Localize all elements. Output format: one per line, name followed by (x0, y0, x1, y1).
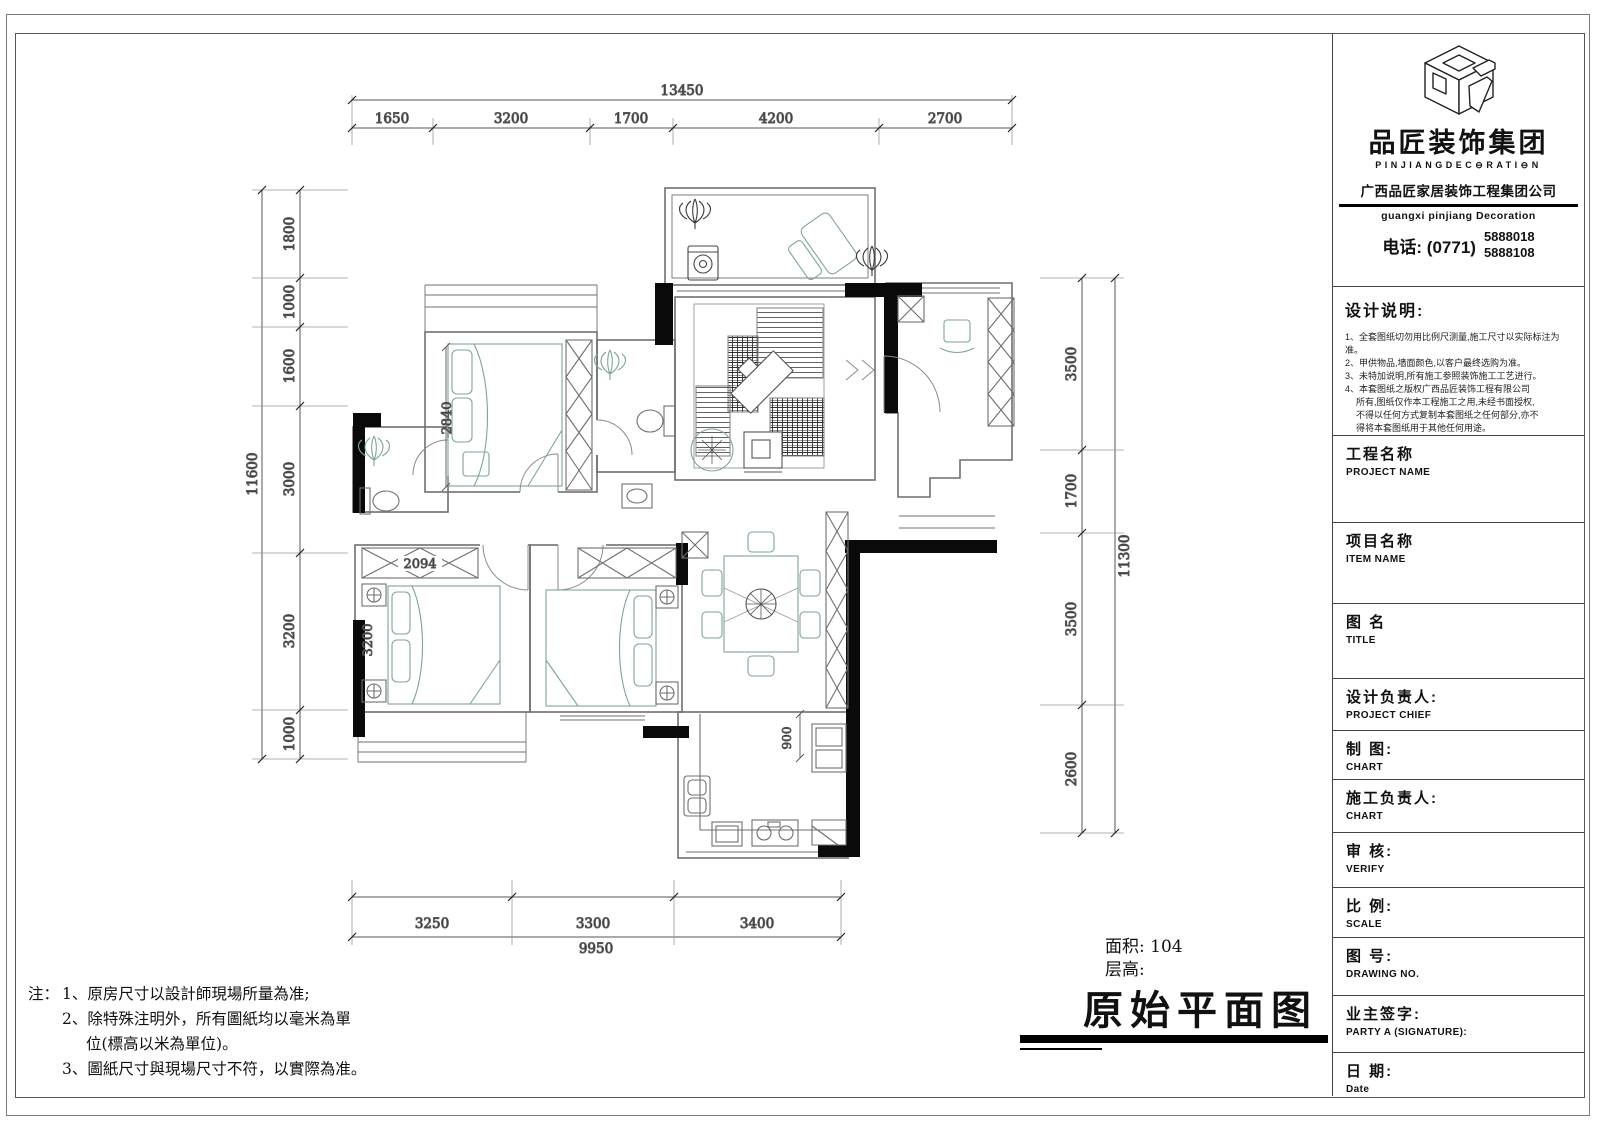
field-label-cn: 施工负责人: (1346, 787, 1584, 808)
bathroom-left-outline (353, 427, 448, 512)
field-chart: 制 图: CHART (1333, 730, 1584, 779)
field-label-en: VERIFY (1346, 864, 1584, 875)
company-name-cn: 品匠装饰集团 (1333, 128, 1584, 158)
field-scale: 比 例: SCALE (1333, 887, 1584, 937)
bed-bedroom-2 (388, 586, 500, 704)
title-block-header: 品匠装饰集团 PINJIANGDEC⊖RATI⊖N 广西品匠家居装饰工程集团公司… (1333, 42, 1584, 286)
dim-right-total: 11300 (1117, 535, 1133, 578)
window-balcony-band (677, 285, 845, 291)
design-note-line: 2、甲供物品,墙面颜色,以客户最终选购为准。 (1345, 357, 1576, 370)
phone-label: 电话: (0771) (1382, 233, 1476, 258)
phone-numbers: 5888018 5888108 (1484, 229, 1535, 261)
entry-porch-steps (899, 516, 995, 528)
nightstands-bedroom-3 (656, 586, 678, 704)
note-line: 2、除特殊注明外，所有圖紙均以毫米為單 (28, 1007, 388, 1032)
design-note-line: 不得以任何方式复制本套图纸之任何部分,亦不 (1345, 409, 1576, 422)
phone-number-2: 5888108 (1484, 245, 1535, 260)
field-drawing-no: 图 号: DRAWING NO. (1333, 937, 1584, 995)
design-notes-title: 设计说明: (1345, 297, 1576, 321)
toilet-center-bathroom (637, 406, 675, 436)
dim-top-seg: 3200 (494, 111, 528, 127)
dim-top-seg: 1700 (614, 111, 648, 127)
company-logo (1411, 42, 1507, 128)
field-label-en: ITEM NAME (1346, 554, 1584, 565)
note-line: 3、圖紙尺寸與現場尺寸不符，以實際為准。 (28, 1057, 388, 1082)
bathroom-center-outline (597, 340, 675, 472)
field-label-cn: 制 图: (1346, 738, 1584, 759)
wardrobe-study (898, 296, 1014, 426)
desk-chair-study (940, 320, 974, 353)
field-label-cn: 比 例: (1346, 895, 1584, 916)
drawing-title-underline (1020, 1035, 1328, 1043)
dim-top-seg: 4200 (759, 111, 793, 127)
design-note-line: 4、本套图纸之版权广西品匠装饰工程有限公司 (1345, 383, 1576, 396)
door-bedroom-2 (483, 545, 528, 590)
dim-right-seg: 3500 (1064, 602, 1080, 636)
side-table-tea-room (744, 432, 782, 472)
dim-chain-right: 11300 3500 1700 3500 2600 (1040, 274, 1133, 837)
field-label-cn: 设计负责人: (1346, 686, 1584, 707)
design-notes-body: 1、全套图纸切勿用比例尺测量,施工尺寸以实际标注为准。 2、甲供物品,墙面颜色,… (1345, 331, 1576, 435)
dim-top-seg: 2700 (928, 111, 962, 127)
company-name-en: PINJIANGDEC⊖RATI⊖N (1333, 160, 1584, 171)
door-gaps (443, 420, 606, 549)
field-label-en: CHART (1346, 762, 1584, 773)
field-label-en: PARTY A (SIGNATURE): (1346, 1027, 1584, 1038)
plant-bathroom (595, 350, 626, 380)
field-label-cn: 图 名 (1346, 611, 1584, 632)
field-label-en: PROJECT CHIEF (1346, 710, 1584, 721)
dim-right-seg: 2600 (1064, 752, 1080, 786)
field-party-signature: 业主签字: PARTY A (SIGNATURE): (1333, 995, 1584, 1052)
field-label-cn: 日 期: (1346, 1060, 1584, 1081)
door-bathroom-center (597, 420, 632, 455)
dim-left-seg: 1000 (282, 285, 298, 319)
bay-window-top (425, 285, 597, 332)
design-note-line: 1、全套图纸切勿用比例尺测量,施工尺寸以实际标注为准。 (1345, 331, 1576, 357)
field-label-cn: 图 号: (1346, 945, 1584, 966)
door-bedroom-3 (558, 545, 603, 590)
dim-left-seg: 3200 (282, 614, 298, 648)
drawing-title-underline-thin (1020, 1048, 1102, 1050)
fridge (812, 724, 846, 772)
dim-bottom-total: 9950 (579, 941, 613, 957)
dim-top-total: 13450 (661, 83, 704, 99)
corner-cabinet (812, 820, 846, 845)
field-label-en: Date (1346, 1084, 1584, 1095)
design-notes-section: 设计说明: 1、全套图纸切勿用比例尺测量,施工尺寸以实际标注为准。 2、甲供物品… (1333, 286, 1584, 435)
field-title: 图 名 TITLE (1333, 603, 1584, 678)
tall-cabinet-dining (682, 512, 848, 708)
design-note-line: 3、未特加说明,所有施工参照装饰施工工艺进行。 (1345, 370, 1576, 383)
bedroom-2-outline (355, 545, 530, 712)
dim-chain-left: 11600 1800 1000 1600 3000 3200 1000 (245, 186, 348, 763)
field-label-cn: 工程名称 (1346, 443, 1584, 464)
field-project-chief: 设计负责人: PROJECT CHIEF (1333, 678, 1584, 730)
dim-left-seg: 1800 (282, 217, 298, 251)
washing-machine (688, 246, 718, 280)
dim-right-seg: 3500 (1064, 347, 1080, 381)
company-phone: 电话: (0771) 5888018 5888108 (1333, 229, 1584, 261)
washbasin (622, 484, 652, 508)
field-project-name: 工程名称 PROJECT NAME (1333, 435, 1584, 522)
entry-direction-arrows (846, 360, 874, 380)
drawing-sheet: 13450 1650 3200 1700 4200 2700 11600 180… (0, 0, 1600, 1131)
notes-prefix: 注： (28, 982, 62, 1007)
kitchen-counter (684, 714, 846, 846)
dim-kitchen-depth: 900 (780, 727, 794, 750)
toilet-left-bathroom (360, 488, 399, 514)
field-label-en: DRAWING NO. (1346, 969, 1584, 980)
dim-left-seg: 3000 (282, 462, 298, 496)
field-verify: 审 核: VERIFY (1333, 832, 1584, 887)
field-label-cn: 业主签字: (1346, 1003, 1584, 1024)
field-label-cn: 审 核: (1346, 840, 1584, 861)
field-label-en: TITLE (1346, 635, 1584, 646)
bay-window-bottom (358, 712, 526, 762)
balcony-inner-line (672, 195, 868, 278)
design-note-line: 所有,图纸仅作本工程施工之用,未经书面授权, (1345, 396, 1576, 409)
dim-bottom-seg: 3400 (740, 916, 774, 932)
phone-number-1: 5888018 (1484, 229, 1535, 244)
dim-bed-depth: 2840 (440, 401, 455, 434)
company-full-name-cn: 广西品匠家居装饰工程集团公司 (1333, 180, 1584, 200)
dim-bottom-seg: 3250 (415, 916, 449, 932)
kitchen-outline (678, 712, 848, 858)
field-label-en: SCALE (1346, 919, 1584, 930)
company-full-name-en: guangxi pinjiang Decoration (1333, 210, 1584, 222)
field-label-en: PROJECT NAME (1346, 467, 1584, 478)
dim-left-total: 11600 (245, 453, 261, 496)
lounge-chair (782, 211, 858, 288)
dim-right-seg: 1700 (1064, 474, 1080, 508)
sheet-notes: 注： 1、原房尺寸以設計師現場所量為准; 2、除特殊注明外，所有圖紙均以毫米為單… (28, 982, 388, 1082)
plant-balcony-left (680, 199, 711, 229)
furniture (359, 199, 1014, 846)
dim-chain-bottom: 3250 3300 3400 9950 (348, 880, 845, 957)
design-note-line: 得将本套图纸用于其他任何用途。 (1345, 422, 1576, 435)
bed-bedroom-3 (546, 590, 656, 706)
dim-bottom-seg: 3300 (576, 916, 610, 932)
dim-left-seg: 1600 (282, 349, 298, 383)
dim-wardrobe-width: 2094 (403, 557, 436, 572)
field-label-cn: 项目名称 (1346, 530, 1584, 551)
note-line: 1、原房尺寸以設計師現場所量為准; (62, 982, 310, 1007)
title-block: 品匠装饰集团 PINJIANGDEC⊖RATI⊖N 广西品匠家居装饰工程集团公司… (1332, 34, 1584, 1096)
dim-left-seg: 1000 (282, 717, 298, 751)
window-bedroom-3 (560, 716, 645, 720)
wardrobe-bedroom-1 (566, 340, 592, 490)
bedroom-3-outline (530, 545, 682, 712)
stove (752, 820, 798, 846)
note-line: 位(標高以米為單位)。 (28, 1032, 388, 1057)
field-label-en: CHART (1346, 811, 1584, 822)
area-info: 面积: 104 层高: (1105, 936, 1183, 982)
dim-chain-top: 13450 1650 3200 1700 4200 2700 (348, 83, 1016, 145)
field-item-name: 项目名称 ITEM NAME (1333, 522, 1584, 603)
area-label: 面积: 104 (1105, 936, 1183, 959)
field-date: 日 期: Date (1333, 1052, 1584, 1103)
dining-table (702, 532, 820, 676)
door-bathroom-left (413, 440, 448, 475)
dim-bed-width: 3200 (361, 623, 376, 656)
plant-balcony-right (857, 246, 888, 276)
drawing-title: 原始平面图 (1083, 978, 1318, 1036)
title-block-divider-thick (1339, 204, 1578, 207)
bed-bedroom-1 (448, 344, 562, 486)
dim-top-seg: 1650 (375, 111, 409, 127)
field-construction-chief: 施工负责人: CHART (1333, 779, 1584, 832)
